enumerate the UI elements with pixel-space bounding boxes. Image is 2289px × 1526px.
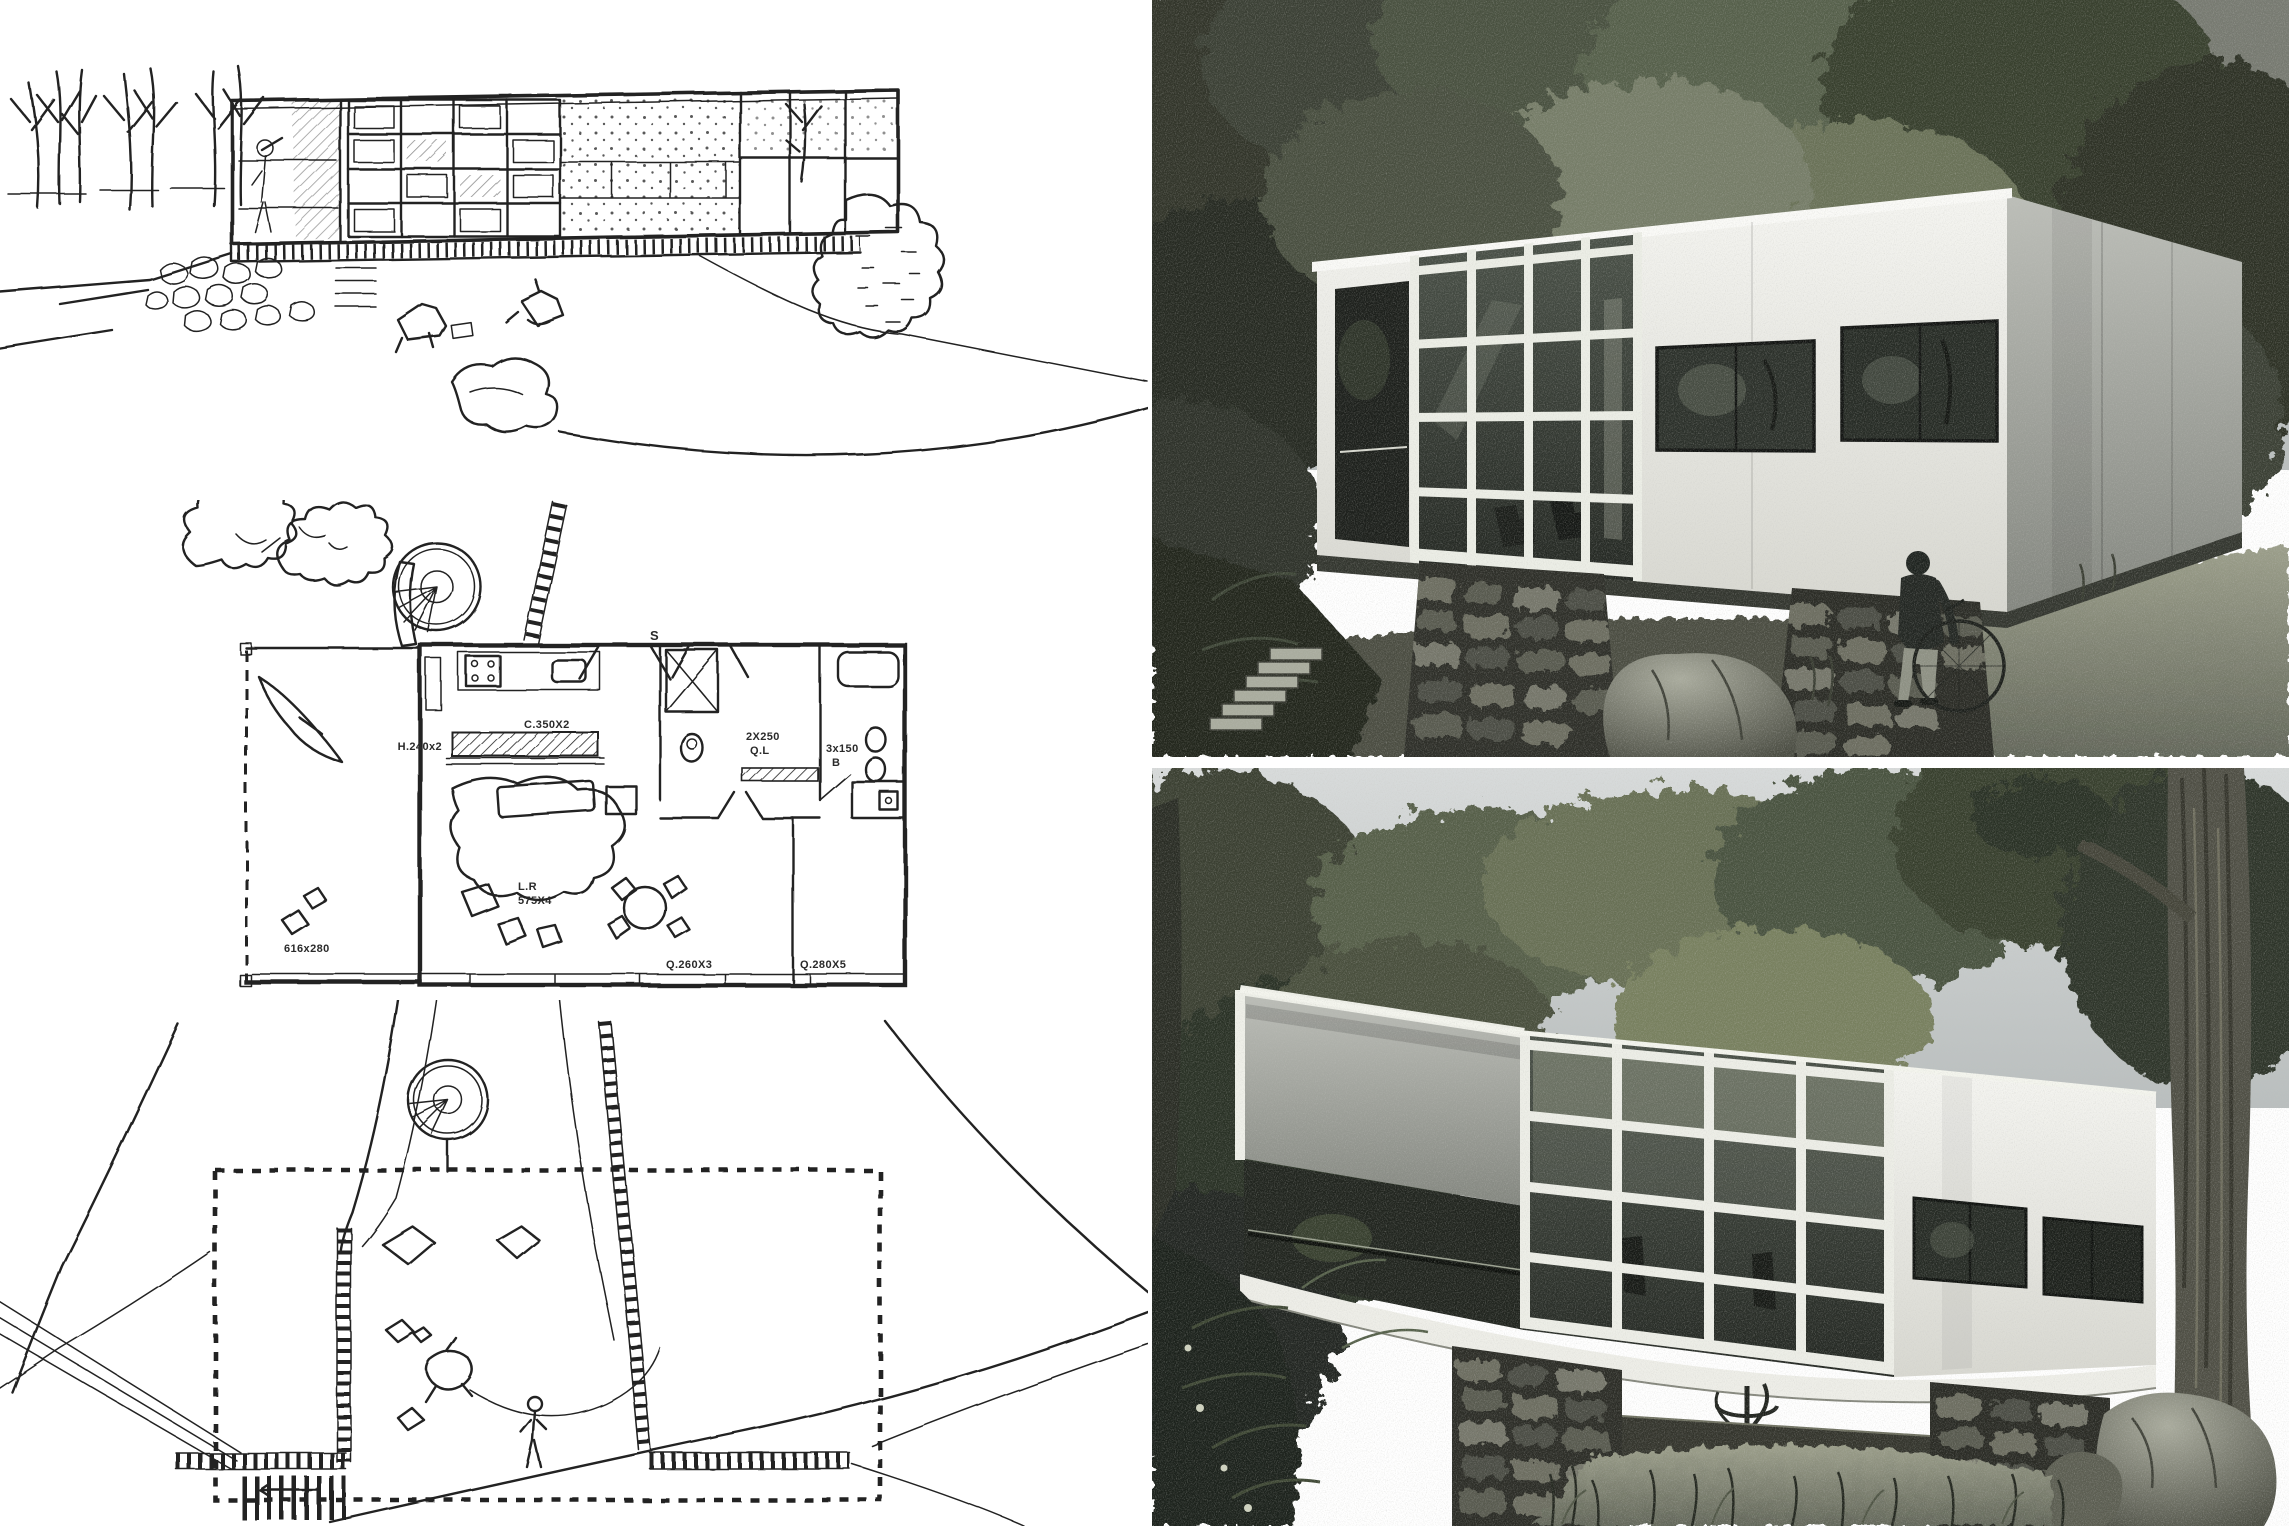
bare-trees bbox=[8, 66, 282, 210]
label-bedroom1: Q.260X3 bbox=[666, 959, 712, 971]
house-sketch bbox=[232, 90, 898, 262]
plan-labels: S C.350X2 H.240x2 2X250 Q.L 3x150 B L.R … bbox=[284, 628, 859, 971]
plan-spiral-stair bbox=[393, 543, 481, 646]
plan-kitchen bbox=[426, 652, 600, 710]
label-shelf: C.350X2 bbox=[524, 719, 570, 731]
architecture-collage: S C.350X2 H.240x2 2X250 Q.L 3x150 B L.R … bbox=[0, 0, 2289, 1526]
film-grain bbox=[1152, 768, 2289, 1526]
plan-baths bbox=[666, 650, 905, 818]
label-bath1-size: 2X250 bbox=[746, 731, 780, 743]
perspective-sketch bbox=[0, 0, 1148, 500]
plan-terrace bbox=[258, 676, 342, 934]
label-closet: H.240x2 bbox=[398, 741, 442, 753]
stone-base-sketch bbox=[146, 257, 376, 331]
site-retaining-walls bbox=[176, 1022, 850, 1498]
photo-top bbox=[1152, 0, 2289, 757]
label-bedroom2: Q.280X5 bbox=[800, 959, 846, 971]
label-entry: S bbox=[650, 628, 659, 643]
site-plan-sketch bbox=[0, 1000, 1148, 1526]
sketch-column: S C.350X2 H.240x2 2X250 Q.L 3x150 B L.R … bbox=[0, 0, 1148, 1526]
plan-walls bbox=[240, 643, 905, 986]
photo-bottom bbox=[1152, 768, 2289, 1526]
label-bath2-size: 3x150 bbox=[826, 743, 859, 755]
plan-trees bbox=[182, 500, 392, 585]
label-living-room: L.R bbox=[518, 881, 537, 893]
site-spiral-stair bbox=[408, 1060, 488, 1172]
plan-ramp bbox=[524, 502, 567, 644]
film-grain bbox=[1152, 0, 2289, 757]
label-terrace: 616x280 bbox=[284, 943, 330, 955]
plan-shelf bbox=[446, 732, 604, 764]
photo-column bbox=[1152, 0, 2289, 1526]
label-bath1-room: Q.L bbox=[750, 745, 770, 757]
floor-plan-sketch: S C.350X2 H.240x2 2X250 Q.L 3x150 B L.R … bbox=[0, 500, 1148, 1000]
label-bath2-room: B bbox=[832, 757, 840, 769]
plan-living bbox=[450, 777, 690, 948]
label-living-size: 575X4 bbox=[518, 895, 552, 907]
site-contours bbox=[0, 1022, 1148, 1526]
site-rocks-figures bbox=[382, 1226, 660, 1467]
site-footprint bbox=[215, 1170, 880, 1500]
